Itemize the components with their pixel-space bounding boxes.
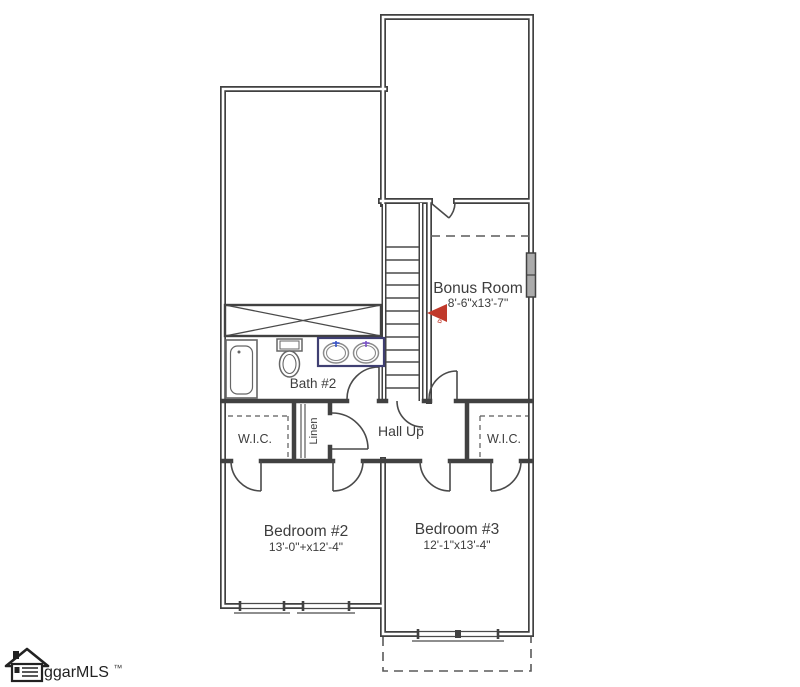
door-wic-left <box>231 461 261 491</box>
interior-walls <box>223 401 531 461</box>
door-bedroom-3 <box>420 461 450 491</box>
house-logo-icon <box>6 649 48 681</box>
bonus-window <box>527 253 536 297</box>
wic-left-label: W.I.C. <box>238 432 272 446</box>
door-wic-right <box>491 461 521 491</box>
mls-logo: ggarMLS ™ <box>6 649 122 681</box>
linen-shelf-lines <box>301 404 305 458</box>
bedroom2-window-1 <box>234 601 290 613</box>
attic-access-box <box>225 305 381 336</box>
svg-text:ggarMLS ™: ggarMLS ™ <box>44 663 122 681</box>
bonus-room-label: Bonus Room <box>433 280 523 297</box>
door-upper-room <box>431 203 455 218</box>
vanity-fixture <box>318 338 384 366</box>
toilet-fixture <box>277 339 302 377</box>
hall-label: Hall Up <box>378 423 424 439</box>
logo-text: ggarMLS <box>44 664 109 681</box>
bedroom3-label: Bedroom #3 <box>415 521 499 538</box>
wic-right-label: W.I.C. <box>487 432 521 446</box>
bedroom2-label: Bedroom #2 <box>264 523 348 540</box>
door-bonus-room <box>429 371 457 399</box>
bath-label: Bath #2 <box>290 376 337 391</box>
bedroom2-dims: 13'-0"+x12'-4" <box>269 540 343 554</box>
staircase <box>384 203 421 401</box>
floor-plan-drawing: DATA Bonus Room 8'-6"x13'-7" Bath #2 Hal… <box>0 0 800 687</box>
door-bath <box>347 367 379 399</box>
stair-treads <box>386 247 419 388</box>
door-bedroom-2 <box>333 461 363 491</box>
floor-plan-page: DATA Bonus Room 8'-6"x13'-7" Bath #2 Hal… <box>0 0 800 687</box>
logo-trademark: ™ <box>113 663 122 673</box>
linen-label: Linen <box>308 418 320 445</box>
bedroom2-window-2 <box>297 601 355 613</box>
bathtub-fixture <box>226 340 257 398</box>
roof-outline-dashed <box>383 637 531 671</box>
bonus-room-dims: 8'-6"x13'-7" <box>448 296 508 310</box>
door-linen <box>332 413 368 449</box>
bedroom3-dims: 12'-1"x13'-4" <box>423 538 490 552</box>
bedroom3-window <box>412 629 504 641</box>
